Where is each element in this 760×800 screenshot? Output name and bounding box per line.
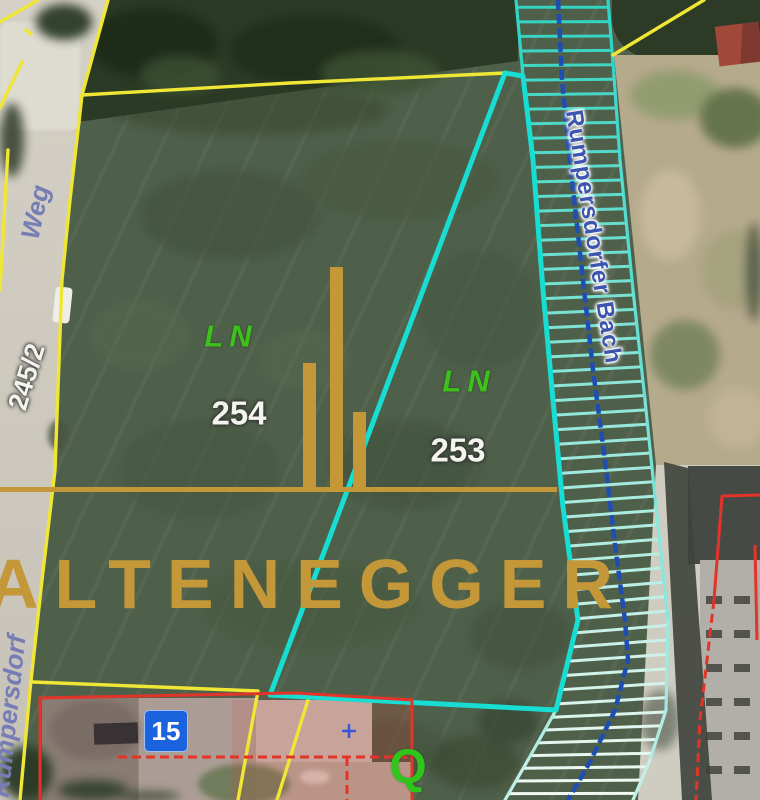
parcel-number-253: 253: [430, 434, 485, 467]
logo-bar: [303, 363, 316, 490]
watermark-text: ALTENEGGER: [0, 549, 629, 619]
logo-bar: [330, 267, 343, 490]
logo-bar: [353, 412, 366, 490]
aerial-cadastral-map[interactable]: ALTENEGGER Weg 245/2 Rumpersdorf LN 254 …: [0, 0, 760, 800]
cadastral-linework: [0, 0, 760, 800]
house-number-sign: 15: [144, 710, 188, 752]
land-use-label-253: LN: [442, 366, 495, 397]
parcel-number-254: 254: [211, 397, 266, 430]
logo-baseline: [0, 487, 557, 492]
vegetation-symbol: Q: [389, 744, 426, 792]
land-use-label-254: LN: [204, 321, 257, 352]
